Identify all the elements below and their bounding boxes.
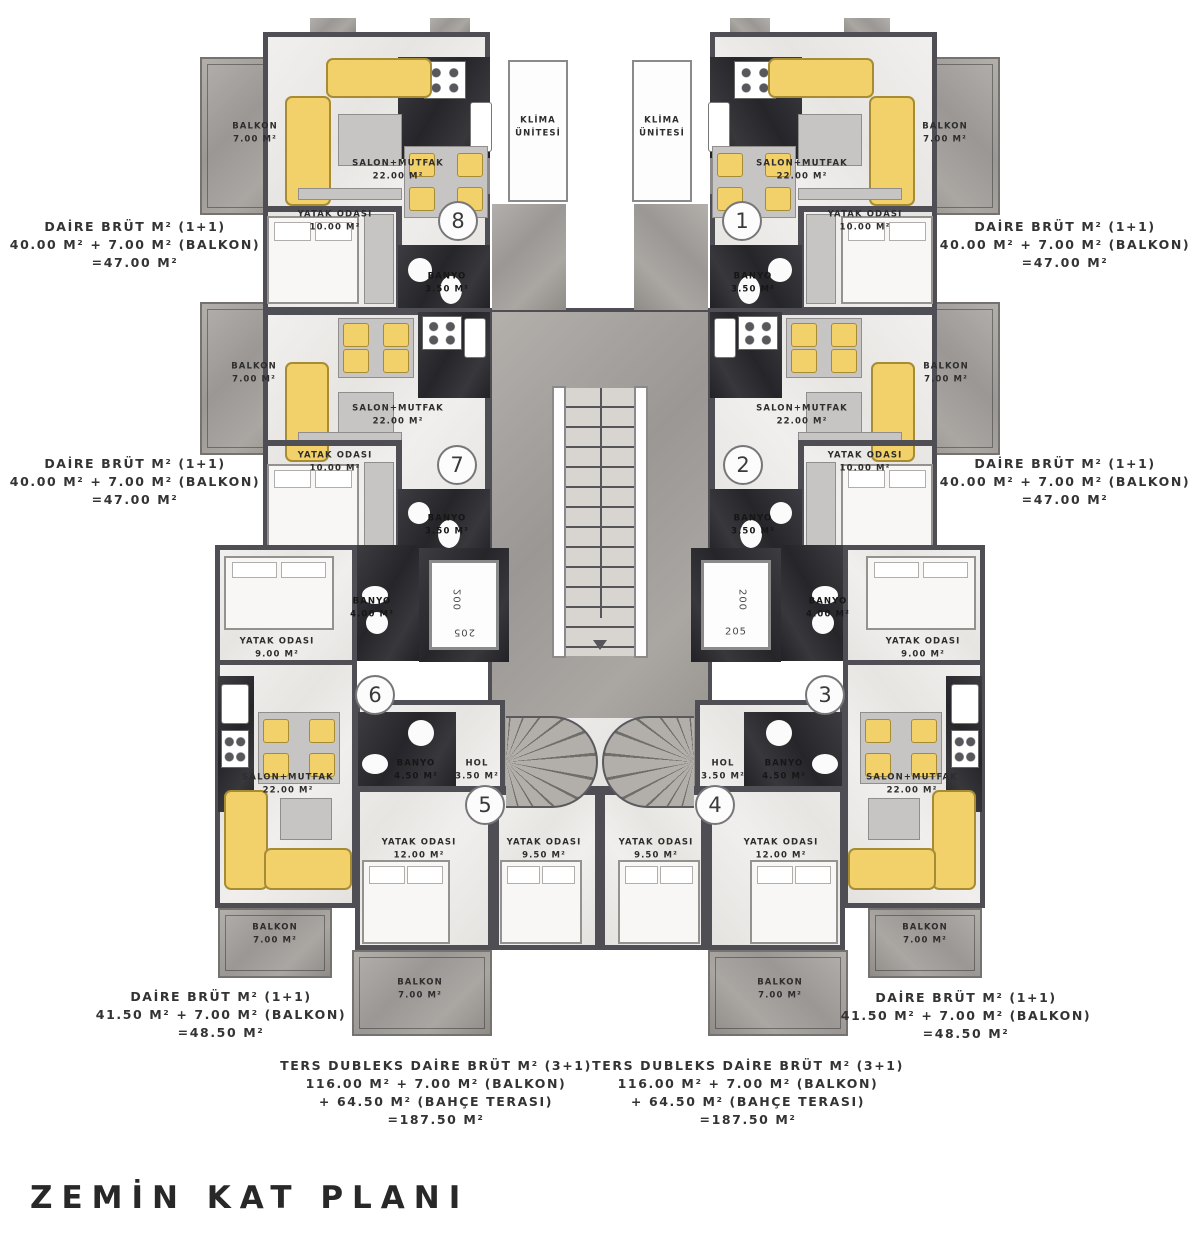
annotation-duplex-area: TERS DUBLEKS DAİRE BRÜT M² (3+1)116.00 M… <box>280 1057 592 1130</box>
plan-title: ZEMİN KAT PLANI <box>30 1180 469 1216</box>
annotation-apartment-area: DAİRE BRÜT M² (1+1)40.00 M² + 7.00 M² (B… <box>10 218 260 272</box>
annotations-layer: DAİRE BRÜT M² (1+1)40.00 M² + 7.00 M² (B… <box>0 0 1200 1245</box>
annotation-apartment-area: DAİRE BRÜT M² (1+1)40.00 M² + 7.00 M² (B… <box>940 455 1190 509</box>
annotation-apartment-area: DAİRE BRÜT M² (1+1)41.50 M² + 7.00 M² (B… <box>841 989 1091 1043</box>
annotation-apartment-area: DAİRE BRÜT M² (1+1)40.00 M² + 7.00 M² (B… <box>940 218 1190 272</box>
annotation-duplex-area: TERS DUBLEKS DAİRE BRÜT M² (3+1)116.00 M… <box>592 1057 904 1130</box>
ground-floor-plan: BALKON7.00 M² BALKON7.00 M² SALON+MUTFAK… <box>0 0 1200 1245</box>
annotation-apartment-area: DAİRE BRÜT M² (1+1)40.00 M² + 7.00 M² (B… <box>10 455 260 509</box>
annotation-apartment-area: DAİRE BRÜT M² (1+1)41.50 M² + 7.00 M² (B… <box>96 988 346 1042</box>
